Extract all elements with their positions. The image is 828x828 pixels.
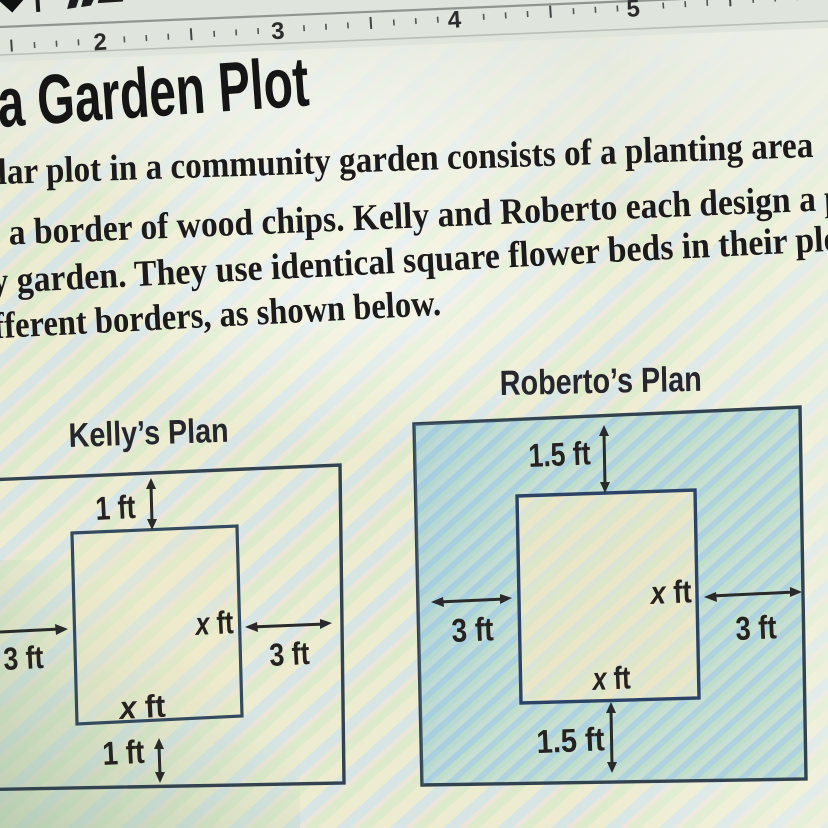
svg-text:3: 3 xyxy=(270,17,285,45)
svg-text:2: 2 xyxy=(93,29,108,57)
svg-text:3 ft: 3 ft xyxy=(451,610,495,649)
svg-text:5: 5 xyxy=(626,0,641,23)
svg-text:3 ft: 3 ft xyxy=(2,639,44,677)
svg-text:Roberto’s Plan: Roberto’s Plan xyxy=(499,360,702,403)
svg-text:1.5 ft: 1.5 ft xyxy=(528,434,592,474)
svg-text:1 ft: 1 ft xyxy=(101,733,145,772)
svg-text:1.5 ft: 1.5 ft xyxy=(536,720,606,760)
svg-text:Kelly’s Plan: Kelly’s Plan xyxy=(68,412,229,455)
svg-text:4: 4 xyxy=(447,6,463,34)
svg-text:3 ft: 3 ft xyxy=(268,635,310,673)
svg-text:x ft: x ft xyxy=(590,659,631,697)
svg-text:x ft: x ft xyxy=(117,688,167,726)
svg-text:x ft: x ft xyxy=(193,604,235,642)
svg-text:x ft: x ft xyxy=(648,573,693,611)
svg-text:1 ft: 1 ft xyxy=(94,488,136,527)
svg-text:3 ft: 3 ft xyxy=(735,608,778,647)
